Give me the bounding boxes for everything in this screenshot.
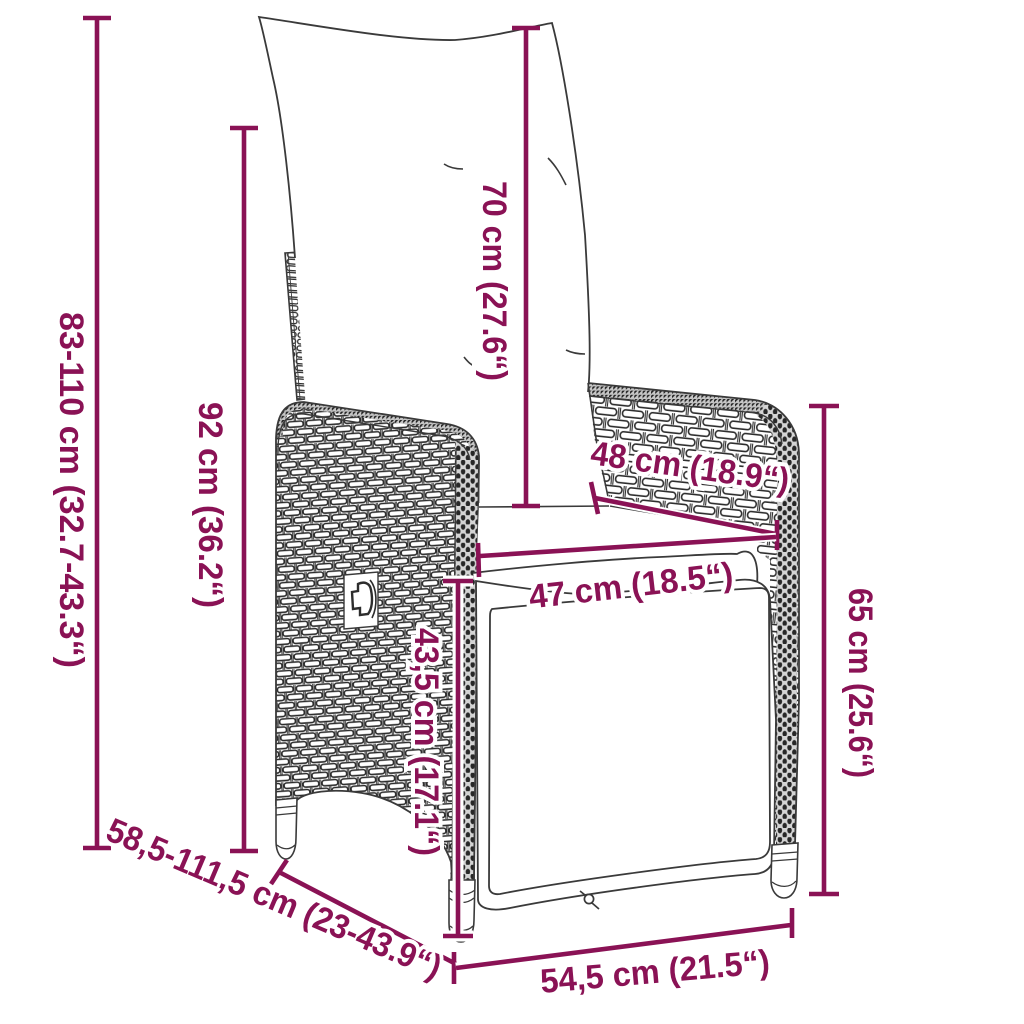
svg-text:43,5 cm (17.1“): 43,5 cm (17.1“) [407, 628, 445, 856]
svg-text:83-110 cm (32.7-43.3“): 83-110 cm (32.7-43.3“) [52, 312, 90, 668]
svg-text:70 cm (27.6“): 70 cm (27.6“) [475, 181, 513, 381]
svg-text:92 cm (36.2“): 92 cm (36.2“) [191, 402, 229, 608]
svg-text:65 cm (25.6“): 65 cm (25.6“) [841, 588, 879, 778]
